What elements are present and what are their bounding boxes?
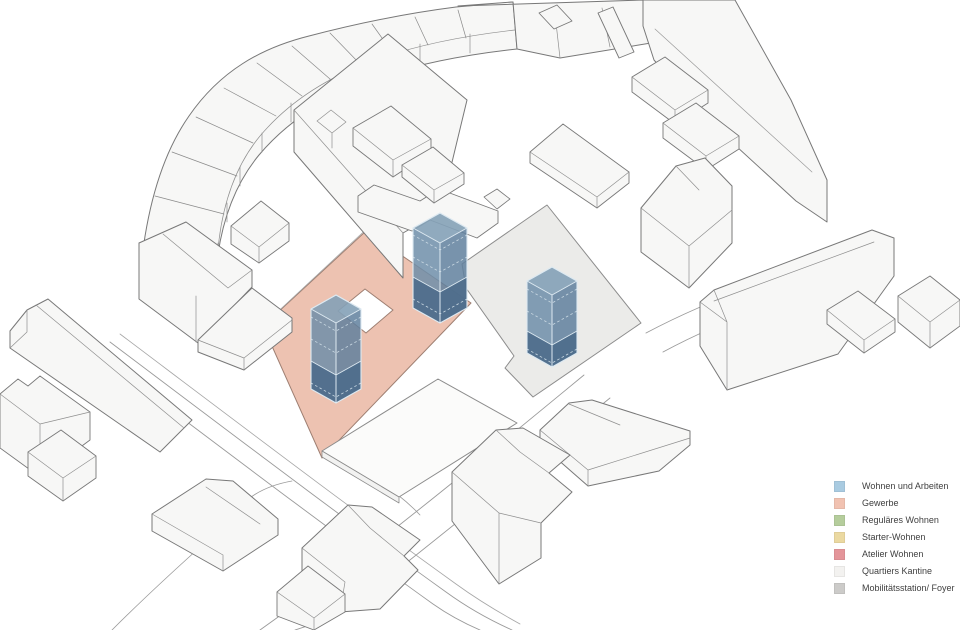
- legend-row-atelier-wohnen: Atelier Wohnen: [834, 549, 955, 560]
- site-plan-stage: Wohnen und ArbeitenGewerbeReguläres Wohn…: [0, 0, 960, 630]
- legend-row-regulaeres-wohnen: Reguläres Wohnen: [834, 515, 955, 526]
- legend-row-wohnen-und-arbeiten: Wohnen und Arbeiten: [834, 481, 955, 492]
- gabled-mid-building: [641, 158, 732, 288]
- legend-swatch-mobilitaetsstation-foyer: [834, 583, 845, 594]
- legend-swatch-wohnen-und-arbeiten: [834, 481, 845, 492]
- far-right-block: [898, 276, 960, 348]
- legend-swatch-atelier-wohnen: [834, 549, 845, 560]
- tilted-box-building: [231, 201, 289, 263]
- legend-label-quartiers-kantine: Quartiers Kantine: [862, 566, 932, 577]
- legend-label-wohnen-und-arbeiten: Wohnen und Arbeiten: [862, 481, 948, 492]
- legend-label-atelier-wohnen: Atelier Wohnen: [862, 549, 923, 560]
- legend-row-gewerbe: Gewerbe: [834, 498, 955, 509]
- legend-swatch-starter-wohnen: [834, 532, 845, 543]
- se-gabled-building-1: [540, 400, 690, 486]
- low-slab-building: [530, 124, 629, 208]
- plaza-tiny-gable: [484, 189, 510, 209]
- legend-row-starter-wohnen: Starter-Wohnen: [834, 532, 955, 543]
- legend-row-mobilitaetsstation-foyer: Mobilitätsstation/ Foyer: [834, 583, 955, 594]
- legend-label-gewerbe: Gewerbe: [862, 498, 899, 509]
- legend-label-regulaeres-wohnen: Reguläres Wohnen: [862, 515, 939, 526]
- legend-swatch-regulaeres-wohnen: [834, 515, 845, 526]
- legend-swatch-quartiers-kantine: [834, 566, 845, 577]
- legend-swatch-gewerbe: [834, 498, 845, 509]
- legend-label-starter-wohnen: Starter-Wohnen: [862, 532, 925, 543]
- legend-label-mobilitaetsstation-foyer: Mobilitätsstation/ Foyer: [862, 583, 955, 594]
- legend-row-quartiers-kantine: Quartiers Kantine: [834, 566, 955, 577]
- legend-panel: Wohnen und ArbeitenGewerbeReguläres Wohn…: [834, 481, 955, 600]
- site-plan-svg: [0, 0, 960, 630]
